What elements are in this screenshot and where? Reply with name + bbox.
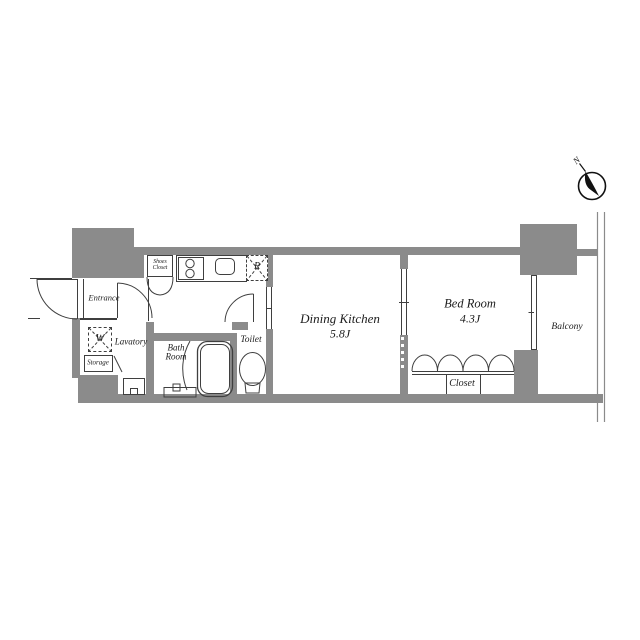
room-label-entrance: Entrance [88, 294, 119, 303]
toilet-bowl-icon [240, 353, 266, 386]
compass-icon [579, 164, 606, 200]
closet-folding-doors [412, 355, 514, 371]
room-label-shoes-closet: Shoes Closet [153, 259, 168, 271]
room-label-balcony: Balcony [551, 323, 582, 333]
floor-plan: Entrance Lavatory W Storage Bath Room To… [0, 0, 640, 640]
bathtub-icon [198, 342, 233, 397]
room-label-lavatory: Lavatory [115, 337, 148, 346]
room-label-toilet: Toilet [240, 336, 261, 346]
room-label-bed-room: Bed Room [444, 297, 496, 310]
entrance-door-arc [37, 279, 77, 319]
stove-burner-bottom [186, 269, 194, 277]
toilet-door-arc [225, 294, 254, 322]
shoes-closet-doors [147, 277, 173, 295]
room-size-dining-kitchen: 5.8J [330, 328, 350, 341]
compass-arrow [585, 172, 599, 197]
room-label-bath-room: Bath Room [166, 344, 187, 363]
room-label-storage: Storage [87, 359, 109, 366]
storage-door-leaf [114, 356, 122, 372]
room-size-bed-room: 4.3J [460, 313, 480, 326]
room-label-closet: Closet [449, 379, 475, 390]
bathtub-inner [201, 345, 230, 394]
lavatory-door-arc [118, 283, 153, 318]
room-label-dining-kitchen: Dining Kitchen [300, 312, 380, 326]
compass-needle-line [580, 164, 586, 172]
stove-burner-top [186, 259, 194, 267]
refrigerator-label: R [254, 262, 260, 273]
washer-label: W [95, 333, 104, 345]
